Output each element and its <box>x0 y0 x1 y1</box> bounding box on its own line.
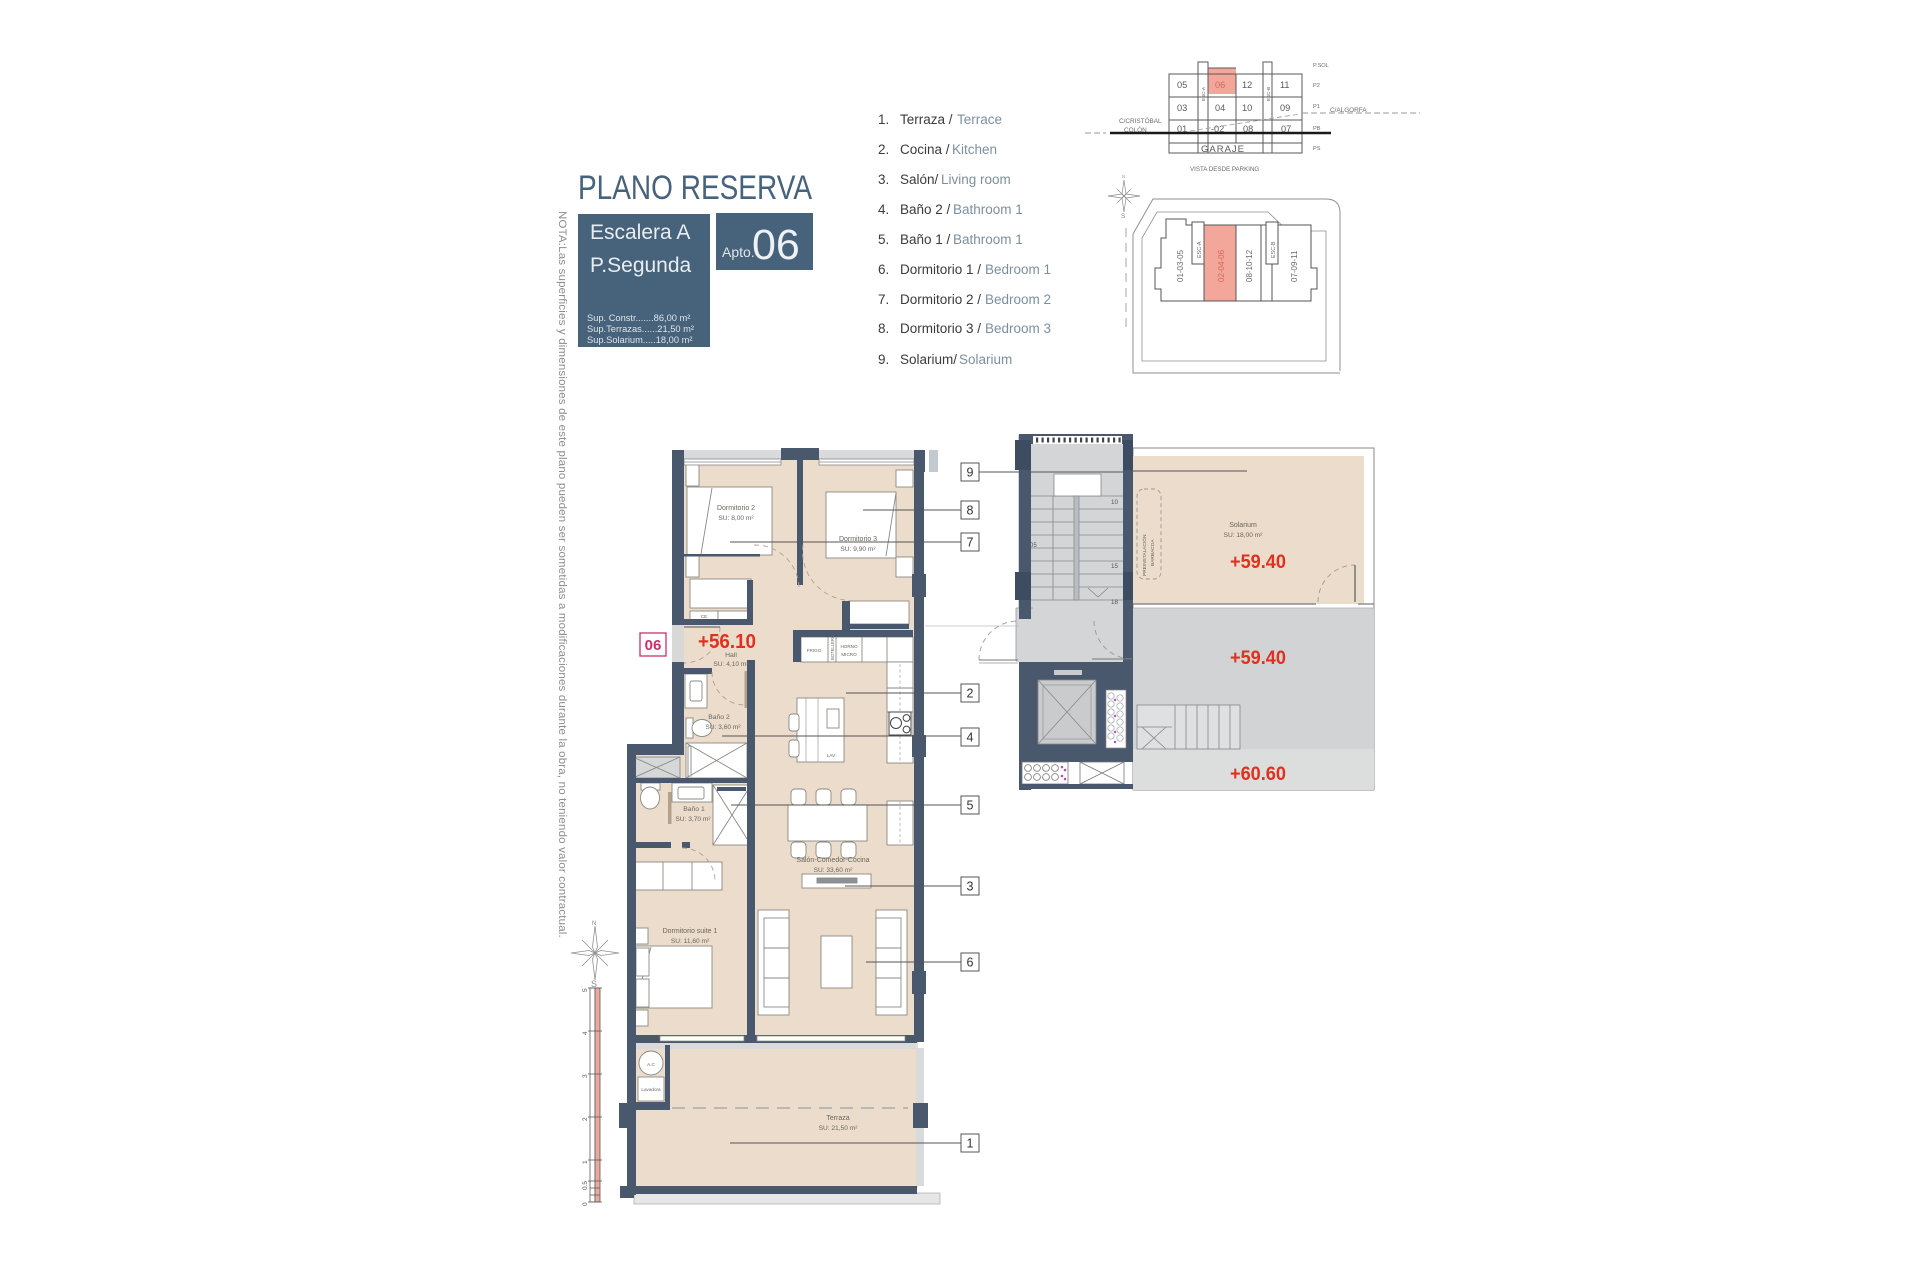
svg-text:Dormitorio 3 /: Dormitorio 3 / <box>900 321 981 336</box>
svg-text:5: 5 <box>582 988 589 992</box>
svg-text:P.SOL: P.SOL <box>1313 63 1329 69</box>
svg-text:9: 9 <box>967 466 974 480</box>
svg-text:C/CRISTÓBAL: C/CRISTÓBAL <box>1119 116 1162 125</box>
svg-text:12: 12 <box>1242 80 1252 90</box>
svg-text:SU: 21,50 m²: SU: 21,50 m² <box>819 1125 859 1132</box>
svg-text:S: S <box>1121 213 1126 220</box>
svg-text:8: 8 <box>967 504 974 518</box>
svg-text:S: S <box>591 979 597 989</box>
svg-text:A.C: A.C <box>647 1062 655 1067</box>
svg-text:1: 1 <box>967 1137 974 1151</box>
svg-text:4: 4 <box>967 731 974 745</box>
svg-text:HORNO: HORNO <box>840 644 858 649</box>
svg-text:+59.40: +59.40 <box>1230 552 1286 573</box>
svg-text:Solarium: Solarium <box>1229 522 1257 529</box>
svg-text:Solarium/: Solarium/ <box>900 352 957 367</box>
svg-text:Baño 2: Baño 2 <box>708 714 730 721</box>
svg-text:05: 05 <box>1177 80 1187 90</box>
svg-text:08-10-12: 08-10-12 <box>1245 249 1254 282</box>
svg-text:Kitchen: Kitchen <box>952 142 997 157</box>
svg-text:01-03-05: 01-03-05 <box>1176 249 1185 282</box>
svg-text:06: 06 <box>752 221 800 269</box>
svg-text:P2: P2 <box>1313 83 1320 89</box>
svg-text:6.: 6. <box>878 262 889 277</box>
svg-text:SU: 4,10 m²: SU: 4,10 m² <box>713 661 749 668</box>
svg-text:VISTA DESDE PARKING: VISTA DESDE PARKING <box>1190 166 1259 173</box>
svg-text:1: 1 <box>582 1160 589 1164</box>
svg-text:N: N <box>1122 174 1125 179</box>
svg-text:10: 10 <box>1111 499 1119 506</box>
svg-text:4.: 4. <box>878 202 889 217</box>
svg-text:7: 7 <box>967 536 974 550</box>
svg-text:Hall: Hall <box>725 652 737 659</box>
svg-text:06: 06 <box>1215 80 1225 90</box>
svg-text:1.: 1. <box>878 112 889 127</box>
svg-text:02-04-06: 02-04-06 <box>1217 249 1226 282</box>
svg-text:5.: 5. <box>878 232 889 247</box>
svg-text:PREINSTALACIÓN: PREINSTALACIÓN <box>1141 534 1148 576</box>
svg-text:SU: 8,00 m²: SU: 8,00 m² <box>718 515 754 522</box>
svg-text:SU: 3,60 m²: SU: 3,60 m² <box>705 724 741 731</box>
svg-text:3: 3 <box>582 1074 589 1078</box>
svg-text:15: 15 <box>1111 563 1119 570</box>
svg-text:Apto.: Apto. <box>722 244 755 260</box>
svg-text:PS: PS <box>1313 146 1321 152</box>
svg-text:Bedroom 2: Bedroom 2 <box>985 292 1051 307</box>
svg-text:18: 18 <box>1111 599 1119 606</box>
svg-text:Dormitorio 2 /: Dormitorio 2 / <box>900 292 981 307</box>
svg-text:09: 09 <box>1280 103 1290 113</box>
svg-text:SU: 3,70 m²: SU: 3,70 m² <box>675 816 711 823</box>
svg-text:LAV: LAV <box>827 753 836 758</box>
svg-text:07-09-11: 07-09-11 <box>1290 250 1299 282</box>
svg-text:04: 04 <box>1215 103 1225 113</box>
svg-text:MICRO: MICRO <box>841 652 857 657</box>
svg-text:ESC-A: ESC-A <box>1197 241 1203 258</box>
svg-text:Salón-Comedor-Cocina: Salón-Comedor-Cocina <box>796 857 869 864</box>
svg-text:BARBACOA: BARBACOA <box>1150 539 1156 566</box>
svg-text:SU: 18,00 m²: SU: 18,00 m² <box>1224 532 1264 539</box>
svg-text:Dormitorio 1 /: Dormitorio 1 / <box>900 262 981 277</box>
svg-text:11: 11 <box>1280 80 1290 90</box>
svg-text:ESC-B: ESC-B <box>1266 87 1271 101</box>
svg-text:Dormitorio 2: Dormitorio 2 <box>717 505 755 512</box>
svg-text:Bedroom 1: Bedroom 1 <box>985 262 1051 277</box>
svg-text:5: 5 <box>967 799 974 813</box>
svg-text:Cocina /: Cocina / <box>900 142 950 157</box>
svg-text:3: 3 <box>967 880 974 894</box>
svg-text:0: 0 <box>582 1202 589 1206</box>
svg-text:7.: 7. <box>878 292 889 307</box>
svg-text:PLANO RESERVA: PLANO RESERVA <box>578 169 812 207</box>
svg-text:06: 06 <box>645 637 662 654</box>
svg-text:Salón/: Salón/ <box>900 172 939 187</box>
svg-text:SU: 9,90 m²: SU: 9,90 m² <box>840 546 876 553</box>
svg-text:+59.40: +59.40 <box>1230 648 1286 669</box>
svg-text:PB: PB <box>1313 126 1321 132</box>
svg-text:8.: 8. <box>878 321 889 336</box>
svg-text:SU: 33,60 m²: SU: 33,60 m² <box>814 867 854 874</box>
svg-text:N: N <box>592 921 596 927</box>
svg-text:P.Segunda: P.Segunda <box>590 254 692 277</box>
svg-text:2: 2 <box>582 1117 589 1121</box>
svg-text:05: 05 <box>1030 543 1037 549</box>
svg-text:P1: P1 <box>1313 104 1320 110</box>
svg-text:Baño 2 /: Baño 2 / <box>900 202 951 217</box>
svg-text:GARAJE: GARAJE <box>1201 144 1245 155</box>
svg-text:2: 2 <box>967 687 974 701</box>
svg-text:Bedroom 3: Bedroom 3 <box>985 321 1051 336</box>
svg-text:Terrace: Terrace <box>957 112 1002 127</box>
svg-text:Solarium: Solarium <box>959 352 1012 367</box>
svg-text:4: 4 <box>582 1031 589 1035</box>
svg-text:Terraza: Terraza <box>826 1115 849 1122</box>
svg-text:CE: CE <box>701 614 707 619</box>
svg-text:6: 6 <box>967 956 974 970</box>
svg-text:Living room: Living room <box>941 172 1011 187</box>
svg-text:+56.10: +56.10 <box>698 631 756 653</box>
svg-text:9.: 9. <box>878 352 889 367</box>
svg-text:03: 03 <box>1177 103 1187 113</box>
svg-text:BOTELLERO: BOTELLERO <box>830 634 835 660</box>
svg-text:Bathroom 1: Bathroom 1 <box>953 202 1023 217</box>
svg-text:SU: 11,60 m²: SU: 11,60 m² <box>671 938 710 945</box>
svg-text:2.: 2. <box>878 142 889 157</box>
svg-text:0.5: 0.5 <box>582 1181 589 1190</box>
svg-text:Sup.Terrazas......21,50 m²: Sup.Terrazas......21,50 m² <box>587 324 694 334</box>
svg-text:10: 10 <box>1242 103 1252 113</box>
svg-text:+60.60: +60.60 <box>1230 764 1286 785</box>
svg-text:3.: 3. <box>878 172 889 187</box>
svg-text:NOTA:Las superficies y dimensi: NOTA:Las superficies y dimensiones de es… <box>556 211 568 938</box>
svg-text:Baño 1 /: Baño 1 / <box>900 232 951 247</box>
svg-text:Lavadora: Lavadora <box>641 1087 661 1092</box>
svg-text:ESC-A: ESC-A <box>1201 86 1206 101</box>
svg-text:Sup.Solarium.....18,00 m²: Sup.Solarium.....18,00 m² <box>587 335 692 345</box>
svg-text:Terraza /: Terraza / <box>900 112 953 127</box>
svg-text:FRIGO: FRIGO <box>807 648 822 653</box>
svg-text:Sup. Constr.......86,00 m²: Sup. Constr.......86,00 m² <box>587 313 690 323</box>
svg-text:Baño 1: Baño 1 <box>683 806 705 813</box>
svg-text:Escalera A: Escalera A <box>590 221 690 244</box>
svg-text:ESC-B: ESC-B <box>1271 241 1277 258</box>
svg-text:Dormitorio suite 1: Dormitorio suite 1 <box>663 928 718 935</box>
svg-text:Bathroom 1: Bathroom 1 <box>953 232 1023 247</box>
